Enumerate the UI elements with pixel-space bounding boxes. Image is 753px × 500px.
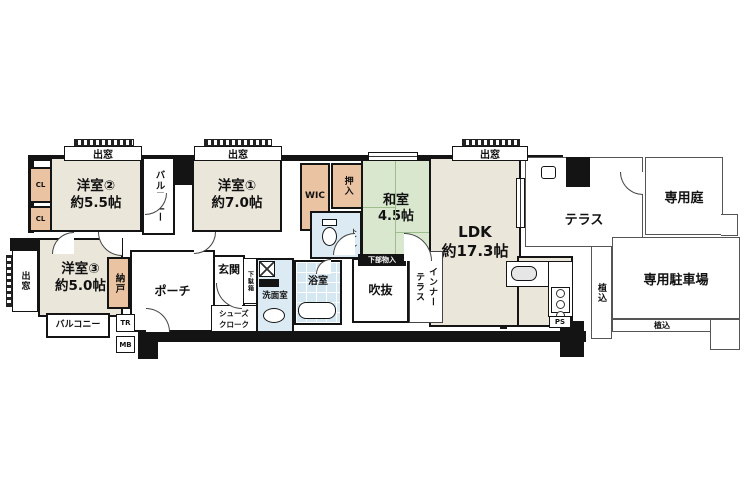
porch: ポーチ [130,250,215,332]
getabako-label: 下駄箱 [246,271,255,292]
ps-box: PS [549,316,571,328]
faucet-icon [541,166,556,179]
room-washitsu-label: 和室 4.5帖 [378,193,414,226]
closet-cl-lower-label: CL [36,215,46,224]
getabako: 下駄箱 [243,258,257,304]
toilet-bowl-icon [322,227,337,246]
private-parking: 専用駐車場 [612,237,740,319]
closet-oshiire: 押入 [331,163,363,209]
hedge-bottom-label: 植込 [654,320,670,331]
hatch-strip [462,139,520,146]
hatch-strip [204,139,272,146]
pillar-balcony-right [174,157,194,185]
private-parking-label: 専用駐車場 [643,269,708,288]
floor-plan: 洋室② 約5.5帖 CL CL バルコニー 洋室① 約7.0帖 WIC 押入 ト… [0,0,753,500]
stove-burner-icon [556,289,565,298]
bay-window-label: 出窓 [480,146,500,161]
ps-label: PS [555,318,565,326]
shoes-cloak: シューズ クローク [211,305,257,333]
tr-label: TR [120,319,130,327]
parking-step [710,319,740,350]
room-yoshitsu3-label: 洋室③ 約5.0帖 [55,261,106,295]
room-yoshitsu2-label: 洋室② 約5.5帖 [71,178,122,212]
bathtub-icon [298,302,336,319]
closet-cl-upper-label: CL [36,181,46,190]
stove-burner-icon [556,300,565,309]
tatami-line [363,207,395,208]
hatch-strip [74,139,134,146]
room-yoshitsu1: 洋室① 約7.0帖 [192,157,282,232]
shoes-cloak-label: シューズ クローク [219,308,249,330]
hedge-bottom: 植込 [612,319,712,332]
private-garden: 専用庭 [645,157,723,235]
senmen-sink-icon [263,308,285,323]
private-garden-label: 専用庭 [664,187,703,206]
pillar-terrace2 [566,157,590,187]
storage-nando: 納戸 [107,257,130,309]
tatami-line [396,232,429,233]
fukinuke-label: 吹抜 [368,283,392,298]
closet-oshiire-label: 押入 [341,176,352,196]
closet-wic-label: WIC [305,191,325,202]
tatami-line [395,161,396,257]
room-ldk-label: LDK 約17.3帖 [441,223,508,261]
bay-window-yoshitsu2: 出窓 [64,146,142,161]
bay-window-label: 出窓 [19,271,32,291]
inner-terrace-label: インナー テラス [413,267,439,307]
mb-box: MB [116,336,135,353]
bay-window-yoshitsu3: 出窓 [12,250,38,312]
tr-box: TR [116,314,135,332]
washer-icon [259,261,275,277]
door-arc [52,232,74,254]
room-yoshitsu2: 洋室② 約5.5帖 [50,157,142,232]
genkan-label: 玄関 [218,263,240,277]
bay-window-label: 出窓 [228,146,248,161]
room-bath-label: 浴室 [308,276,328,289]
vanity-icon [259,279,279,287]
inner-terrace: インナー テラス [409,251,443,323]
hedge-side-label: 植込 [595,283,608,303]
mb-label: MB [119,341,131,349]
terrace-label: テラス [565,209,604,228]
balcony-bottom-label: バルコニー [56,320,101,331]
bay-window-label: 出窓 [93,146,113,161]
room-senmen-label: 洗面室 [262,291,288,302]
kitchen-sink [511,266,537,281]
porch-label: ポーチ [154,284,190,299]
private-garden-notch [721,214,738,236]
storage-nando-label: 納戸 [113,273,125,294]
kabu-monoire: 下部物入 [358,254,406,266]
wall-bottom [140,331,586,342]
toilet-tank [322,219,337,226]
bay-window-ldk: 出窓 [452,146,528,161]
closet-cl-upper: CL [29,167,52,203]
hedge-side: 植込 [591,246,612,339]
bay-window-yoshitsu1: 出窓 [194,146,282,161]
ldk-terrace-window [516,178,525,228]
washitsu-window [368,152,418,161]
balcony-bottom: バルコニー [46,313,110,338]
stove-icon [551,287,570,313]
room-yoshitsu1-label: 洋室① 約7.0帖 [212,178,263,212]
closet-cl-lower: CL [29,206,52,232]
kabu-monoire-label: 下部物入 [368,255,396,265]
fukinuke: 吹抜 [352,258,409,323]
